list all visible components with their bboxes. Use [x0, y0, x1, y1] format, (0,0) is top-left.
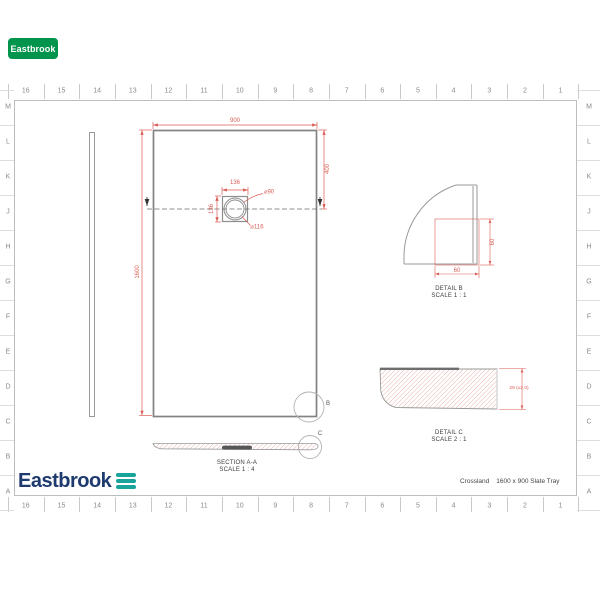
section-scale: SCALE 1 : 4 — [219, 467, 254, 473]
detail-b-dim-horizontal: 60 — [454, 268, 461, 274]
detail-c-scale: SCALE 2 : 1 — [431, 437, 466, 443]
footer-logo: Eastbrook — [18, 471, 136, 491]
callout-b-label: B — [326, 401, 330, 407]
dim-drain-y: 136 — [209, 204, 215, 214]
detail-b-scale: SCALE 1 : 1 — [431, 293, 466, 299]
detail-c-label: DETAIL C — [435, 430, 463, 436]
detail-b-label: DETAIL B — [435, 286, 463, 292]
logo-bars-icon — [116, 471, 136, 491]
drawing-sheet: Eastbrook 16151413121110987654321 161514… — [0, 0, 600, 600]
section-label: SECTION A-A — [217, 460, 257, 466]
detail-c-dim-thickness: 28 (±2.0) — [509, 386, 528, 391]
dim-cover-diameter: ⌀116 — [250, 224, 263, 231]
drawing-linework — [0, 0, 600, 600]
drawing-title: Crossland 1600 x 900 Slate Tray — [460, 478, 560, 485]
product-name: Crossland — [460, 478, 489, 485]
product-description: 1600 x 900 Slate Tray — [496, 478, 559, 485]
callout-c-label: C — [318, 431, 322, 437]
detail-b-dim-vertical: 60 — [490, 239, 496, 246]
footer-logo-text: Eastbrook — [18, 471, 111, 491]
dim-1600: 1600 — [135, 265, 141, 278]
dim-400: 400 — [325, 164, 331, 174]
dim-drain-x: 136 — [230, 180, 240, 186]
dim-900: 900 — [230, 118, 240, 124]
dim-waste-diameter: ⌀90 — [264, 189, 274, 196]
